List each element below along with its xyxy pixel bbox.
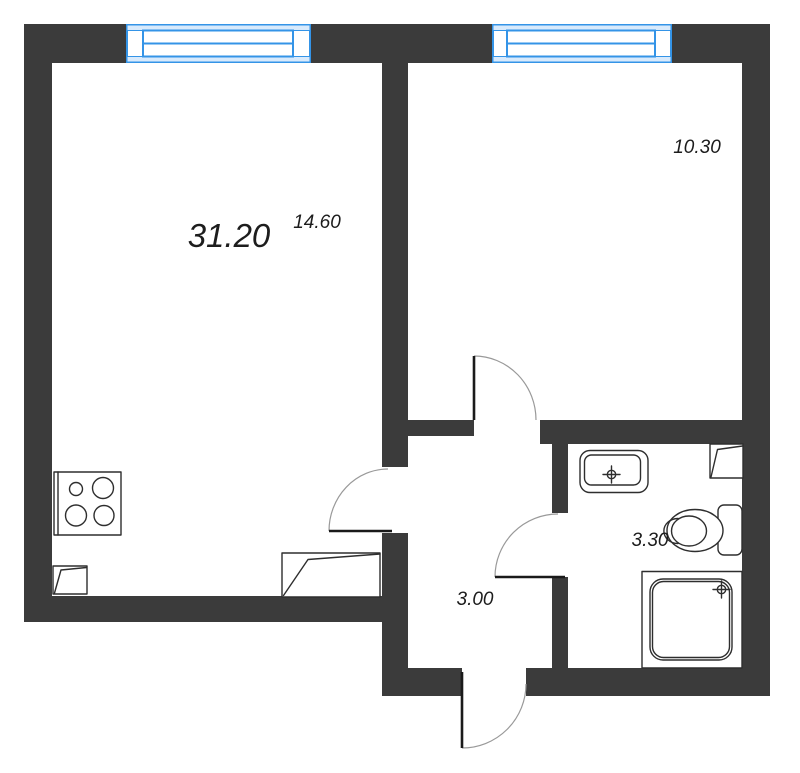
bedroom-area-label: 10.30: [673, 137, 721, 158]
wall-bath-left-lower: [552, 577, 568, 668]
toilet-icon: [664, 505, 742, 555]
living-room-sub-area-label: 14.60: [293, 212, 341, 233]
vent-unit-living-right-icon: [282, 553, 380, 597]
hallway-area-label: 3.00: [457, 589, 494, 610]
floor-plan-page: 31.20 14.60 10.30 3.30 3.00: [0, 0, 800, 773]
door-swing-arc: [329, 469, 388, 531]
door-bathroom-icon: [495, 514, 565, 577]
wall-left: [24, 24, 52, 622]
wall-entry-left: [382, 668, 462, 696]
wall-entry-right: [526, 668, 770, 696]
vent-unit-living-left-icon: [53, 566, 87, 594]
wall-right: [742, 24, 770, 696]
wall-top-middle: [310, 24, 493, 63]
wall-bath-left-upper: [552, 444, 568, 513]
wall-bottom-living: [24, 596, 408, 622]
window-bedroom-icon: [493, 25, 671, 62]
door-swing-arc: [462, 684, 526, 748]
door-entry-icon: [462, 672, 526, 748]
sink-icon: [580, 451, 648, 493]
door-swing-arc: [474, 356, 536, 420]
shower-icon: [642, 572, 742, 669]
floor-plan: 31.20 14.60 10.30 3.30 3.00: [0, 0, 800, 773]
living-room-area-label: 31.20: [188, 217, 271, 254]
wall-partition-hall: [408, 420, 474, 436]
bathroom-area-label: 3.30: [632, 530, 669, 551]
stove-icon: [54, 472, 121, 535]
wall-middle-upper: [382, 63, 408, 467]
wall-partition-bath-top: [540, 420, 742, 444]
vent-unit-bathroom-icon: [710, 444, 743, 478]
window-living-icon: [127, 25, 310, 62]
door-bedroom-icon: [474, 356, 536, 420]
door-living-icon: [329, 469, 392, 531]
door-swing-arc: [495, 514, 558, 577]
